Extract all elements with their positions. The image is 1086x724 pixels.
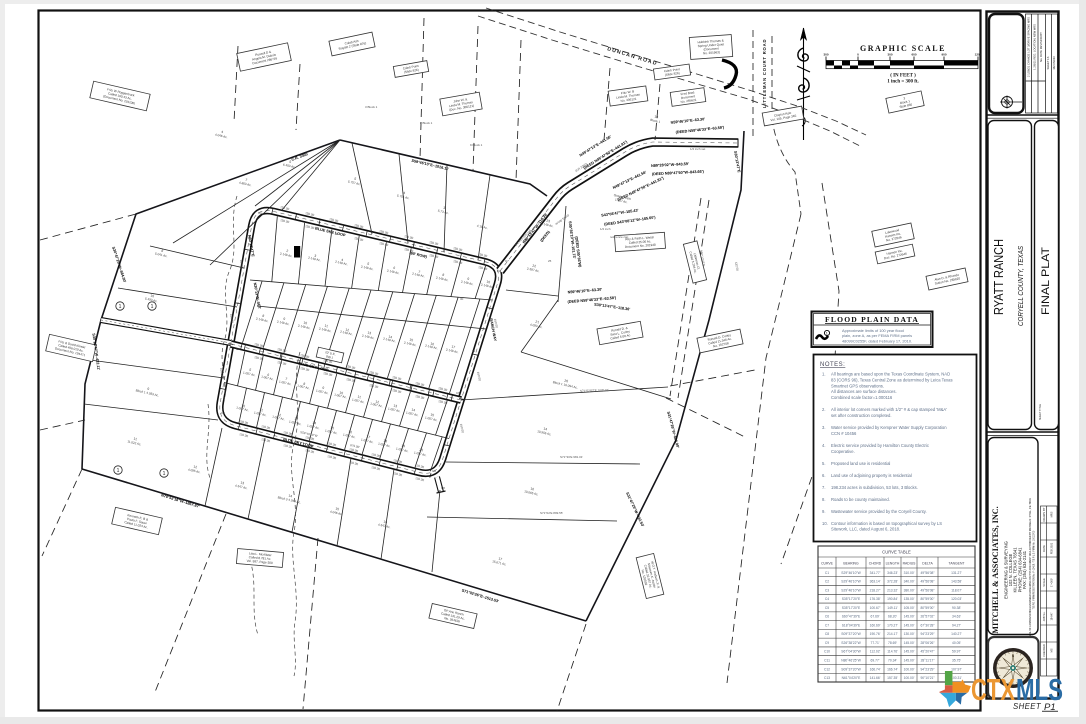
svg-text:Sitework, LLC, dated August 6,: Sitework, LLC, dated August 6, 2018. bbox=[831, 527, 900, 532]
svg-text:149.11': 149.11' bbox=[887, 606, 898, 610]
svg-text:C5: C5 bbox=[825, 606, 829, 610]
svg-text:8.: 8. bbox=[822, 497, 826, 502]
svg-text:80°59'00": 80°59'00" bbox=[920, 597, 935, 601]
svg-text:310.00': 310.00' bbox=[904, 571, 915, 575]
svg-text:35.75': 35.75' bbox=[952, 659, 961, 663]
svg-text:C2: C2 bbox=[825, 580, 829, 584]
svg-text:346.23': 346.23' bbox=[887, 571, 898, 575]
svg-text:94°23'29": 94°23'29" bbox=[920, 632, 935, 636]
svg-text:166.74': 166.74' bbox=[870, 667, 881, 671]
svg-text:S35°17'20"E: S35°17'20"E bbox=[842, 606, 861, 610]
svg-text:S71°02'E 899.55': S71°02'E 899.55' bbox=[540, 511, 563, 515]
svg-text:Roads to be county maintained.: Roads to be county maintained. bbox=[831, 497, 890, 502]
svg-text:Contour information is based o: Contour information is based on topograp… bbox=[831, 521, 942, 526]
svg-text:140.27': 140.27' bbox=[951, 632, 962, 636]
svg-text:70.34': 70.34' bbox=[888, 659, 897, 663]
svg-text:1: 1 bbox=[119, 304, 122, 310]
svg-text:80°59'00": 80°59'00" bbox=[920, 606, 935, 610]
svg-text:DATE: DATE bbox=[1042, 545, 1046, 552]
svg-text:214.17': 214.17' bbox=[887, 632, 898, 636]
svg-text:CHORD: CHORD bbox=[869, 561, 882, 565]
svg-text:1 inch = 300 ft.: 1 inch = 300 ft. bbox=[887, 80, 919, 85]
svg-text:TANGENT: TANGENT bbox=[949, 561, 965, 565]
svg-text:68.20': 68.20' bbox=[888, 615, 897, 619]
svg-text:94.27': 94.27' bbox=[952, 623, 961, 627]
svg-text:1.: 1. bbox=[822, 372, 826, 377]
svg-text:9 Block 1: 9 Block 1 bbox=[470, 143, 483, 147]
svg-text:set after construction complet: set after construction completed. bbox=[831, 413, 892, 418]
svg-text:SHEET 1S: SHEET 1S bbox=[1046, 56, 1050, 69]
svg-text:166.74': 166.74' bbox=[887, 667, 898, 671]
svg-text:C8: C8 bbox=[825, 632, 829, 636]
svg-text:CHECKED: CHECKED bbox=[1042, 644, 1046, 657]
svg-text:300: 300 bbox=[823, 53, 828, 57]
svg-text:S67°04'30"W: S67°04'30"W bbox=[841, 650, 861, 654]
svg-text:Cooperative.: Cooperative. bbox=[831, 449, 855, 454]
svg-text:C7: C7 bbox=[825, 623, 829, 627]
svg-text:Combined scale factor=1.000116: Combined scale factor=1.000116 bbox=[831, 395, 893, 400]
svg-text:143.58': 143.58' bbox=[951, 580, 962, 584]
svg-text:145.00': 145.00' bbox=[904, 659, 915, 663]
svg-text:145.00': 145.00' bbox=[904, 641, 915, 645]
svg-text:49°56'08": 49°56'08" bbox=[920, 580, 935, 584]
svg-text:1: 1 bbox=[151, 304, 154, 310]
svg-text:C2: C2 bbox=[497, 269, 501, 273]
svg-text:26°57'02": 26°57'02" bbox=[920, 615, 935, 619]
svg-text:170.27': 170.27' bbox=[887, 623, 898, 627]
svg-text:67.69': 67.69' bbox=[871, 615, 880, 619]
svg-text:145.00': 145.00' bbox=[904, 650, 915, 654]
svg-text:S35°17'20"E: S35°17'20"E bbox=[842, 597, 861, 601]
svg-text:380.00': 380.00' bbox=[904, 588, 915, 592]
svg-text:Smartnet GPS observations.: Smartnet GPS observations. bbox=[831, 383, 884, 388]
svg-text:S29°46'10"W: S29°46'10"W bbox=[841, 580, 861, 584]
svg-text:372.28': 372.28' bbox=[887, 580, 898, 584]
svg-text:1: 1 bbox=[826, 332, 828, 336]
svg-text:1: 1 bbox=[163, 471, 166, 477]
svg-text:All bearings are based upon th: All bearings are based upon the Texas Co… bbox=[831, 372, 950, 377]
svg-text:REVISION: REVISION bbox=[1052, 57, 1056, 70]
svg-text:BEARING: BEARING bbox=[843, 561, 859, 565]
svg-text:94°23'29": 94°23'29" bbox=[920, 667, 935, 671]
svg-text:CTX: CTX bbox=[971, 672, 1015, 707]
svg-text:C8: C8 bbox=[441, 486, 445, 490]
svg-text:C5: C5 bbox=[236, 347, 240, 351]
svg-text:3 Block 1: 3 Block 1 bbox=[365, 105, 378, 109]
svg-text:C4: C4 bbox=[825, 597, 829, 601]
svg-text:C9: C9 bbox=[825, 641, 829, 645]
svg-text:MLS: MLS bbox=[1016, 672, 1063, 707]
svg-text:1: 1 bbox=[117, 468, 120, 474]
svg-text:MRS: MRS bbox=[1050, 511, 1054, 517]
svg-text:100.67': 100.67' bbox=[870, 606, 881, 610]
svg-text:MITCHELL & ASSOCIATES, INC.: MITCHELL & ASSOCIATES, INC. bbox=[991, 506, 1000, 633]
svg-text:28°11'17": 28°11'17" bbox=[921, 659, 936, 663]
svg-text:( IN FEET ): ( IN FEET ) bbox=[890, 74, 916, 79]
svg-text:C3: C3 bbox=[825, 588, 829, 592]
svg-text:GRAPHIC SCALE: GRAPHIC SCALE bbox=[860, 44, 946, 53]
svg-text:100.00': 100.00' bbox=[904, 667, 915, 671]
svg-text:190.84': 190.84' bbox=[887, 597, 898, 601]
svg-text:RADIUS: RADIUS bbox=[903, 561, 917, 565]
svg-text:S18°04'39"E: S18°04'39"E bbox=[842, 623, 861, 627]
svg-text:1/2 inch: 1/2 inch bbox=[600, 227, 611, 231]
svg-text:C4: C4 bbox=[221, 411, 225, 415]
svg-text:83 (CORS 96), Texas Central Zo: 83 (CORS 96), Texas Central Zone as dete… bbox=[831, 377, 953, 382]
svg-text:7.: 7. bbox=[822, 485, 826, 490]
svg-text:All interior lot corners marke: All interior lot corners marked with 1/2… bbox=[831, 407, 947, 412]
svg-text:Land use of adjoining property: Land use of adjoining property is reside… bbox=[831, 473, 912, 478]
svg-text:160.69': 160.69' bbox=[870, 623, 881, 627]
svg-text:112.02': 112.02' bbox=[870, 650, 881, 654]
svg-text:RYATT RANCH: RYATT RANCH bbox=[992, 239, 1006, 315]
svg-text:300: 300 bbox=[887, 53, 892, 57]
svg-text:67°30'28": 67°30'28" bbox=[920, 623, 935, 627]
svg-text:130.00': 130.00' bbox=[904, 632, 915, 636]
svg-text:DELTA: DELTA bbox=[922, 561, 933, 565]
svg-text:100.31': 100.31' bbox=[951, 676, 962, 680]
svg-text:FLOOD PLAIN DATA: FLOOD PLAIN DATA bbox=[825, 315, 919, 324]
svg-text:8 Block 1: 8 Block 1 bbox=[420, 121, 433, 125]
svg-text:90°10'21": 90°10'21" bbox=[920, 676, 935, 680]
svg-text:CORYELL COUNTY, TEXAS: CORYELL COUNTY, TEXAS bbox=[1016, 246, 1025, 326]
svg-text:1200: 1200 bbox=[975, 53, 982, 57]
svg-text:25: 25 bbox=[548, 259, 552, 263]
svg-text:78.69': 78.69' bbox=[888, 641, 897, 645]
svg-text:340.00': 340.00' bbox=[904, 580, 915, 584]
svg-text:190.76': 190.76' bbox=[870, 632, 881, 636]
svg-text:600: 600 bbox=[911, 53, 916, 57]
svg-text:198.234 acres in subdivision,: 198.234 acres in subdivision, 53 lots, 3… bbox=[831, 485, 918, 490]
svg-text:C3: C3 bbox=[432, 469, 436, 473]
svg-text:9.: 9. bbox=[822, 509, 826, 514]
svg-text:C10: C10 bbox=[824, 650, 830, 654]
svg-text:77.71': 77.71' bbox=[871, 641, 880, 645]
svg-text:90.38': 90.38' bbox=[952, 606, 961, 610]
svg-text:131.27': 131.27' bbox=[951, 571, 962, 575]
svg-text:40.05': 40.05' bbox=[952, 641, 961, 645]
svg-text:45°20'47": 45°20'47" bbox=[920, 650, 935, 654]
svg-text:S26°38'22"W: S26°38'22"W bbox=[841, 641, 861, 645]
svg-text:2 1/26/21 CHANGE LOT 3/DRIVE: 2 1/26/21 CHANGE LOT 3/DRIVE SPACING MRS bbox=[1027, 17, 1031, 77]
svg-text:18-047: 18-047 bbox=[1050, 612, 1054, 621]
svg-text:363.14': 363.14' bbox=[870, 580, 881, 584]
svg-text:218.27': 218.27' bbox=[870, 588, 881, 592]
svg-text:C12: C12 bbox=[824, 667, 830, 671]
svg-text:SCALE: SCALE bbox=[1042, 578, 1046, 587]
svg-text:SHEET TITLE: SHEET TITLE bbox=[1038, 404, 1042, 421]
svg-text:49°56'08": 49°56'08" bbox=[920, 571, 935, 575]
svg-text:Electric service provided by H: Electric service provided by Hamilton Co… bbox=[831, 443, 929, 448]
svg-text:1 2/5/21 REG. LOCATION, NE: 1 2/5/21 REG. LOCATION, NEW MRS bbox=[1033, 24, 1037, 70]
svg-text:28°06'26": 28°06'26" bbox=[920, 641, 935, 645]
svg-text:114.76': 114.76' bbox=[887, 650, 898, 654]
svg-text:FEB 2021: FEB 2021 bbox=[1050, 542, 1054, 554]
svg-text:FINAL PLAT: FINAL PLAT bbox=[1040, 247, 1052, 315]
svg-text:LENGTH: LENGTH bbox=[886, 561, 900, 565]
svg-text:Proposed land use is residenti: Proposed land use is residential bbox=[831, 461, 890, 466]
svg-text:reference cap: reference cap bbox=[610, 235, 629, 239]
svg-text:C6: C6 bbox=[456, 391, 460, 395]
svg-text:JOB No.: JOB No. bbox=[1042, 611, 1046, 621]
svg-text:6.: 6. bbox=[822, 473, 826, 478]
svg-text:30: 30 bbox=[460, 297, 464, 301]
svg-text:5.: 5. bbox=[822, 461, 826, 466]
svg-text:49°56'08": 49°56'08" bbox=[920, 588, 935, 592]
svg-text:C7: C7 bbox=[505, 259, 509, 263]
svg-text:All distances are surface dist: All distances are surface distances. bbox=[831, 389, 897, 394]
svg-text:145.00': 145.00' bbox=[904, 615, 915, 619]
svg-text:105.00': 105.00' bbox=[904, 606, 915, 610]
svg-text:3.: 3. bbox=[822, 425, 826, 430]
svg-text:S09°37'20"W: S09°37'20"W bbox=[841, 632, 861, 636]
svg-text:S29°46'10"W: S29°46'10"W bbox=[841, 588, 861, 592]
svg-text:N80°46'25"W: N80°46'25"W bbox=[841, 659, 862, 663]
svg-text:T.B.P.E. FIRM REGISTRATION No.: T.B.P.E. FIRM REGISTRATION No. F-10418 /… bbox=[1033, 530, 1036, 609]
svg-text:FAX: (254) 634-2141: FAX: (254) 634-2141 bbox=[1022, 550, 1027, 589]
svg-text:145.00': 145.00' bbox=[904, 623, 915, 627]
svg-text:CURVE TABLE: CURVE TABLE bbox=[882, 549, 911, 554]
svg-text:C11: C11 bbox=[824, 659, 830, 663]
svg-text:69.77': 69.77' bbox=[871, 659, 880, 663]
svg-text:N61°04'20"E: N61°04'20"E bbox=[842, 676, 862, 680]
svg-text:141.66': 141.66' bbox=[870, 676, 881, 680]
svg-text:S71°30'E 981.01': S71°30'E 981.01' bbox=[560, 455, 583, 459]
svg-text:1/2 inch set: 1/2 inch set bbox=[690, 147, 706, 151]
svg-text:Water service provided by Kemp: Water service provided by Kempner Water … bbox=[831, 425, 947, 430]
svg-text:C6: C6 bbox=[825, 615, 829, 619]
svg-text:S29°46'10"W: S29°46'10"W bbox=[841, 571, 861, 575]
svg-text:4.: 4. bbox=[822, 443, 826, 448]
svg-text:C13: C13 bbox=[824, 676, 830, 680]
svg-text:48099C0255F, dated February 17: 48099C0255F, dated February 17, 2010. bbox=[842, 338, 912, 343]
svg-text:NOTES:: NOTES: bbox=[820, 362, 845, 368]
svg-text:DRAWN BY: DRAWN BY bbox=[1042, 507, 1046, 521]
svg-text:118.07': 118.07' bbox=[951, 588, 962, 592]
svg-text:C1: C1 bbox=[825, 571, 829, 575]
svg-text:157.35': 157.35' bbox=[887, 676, 898, 680]
svg-text:LITTLEMAN COURT ROAD: LITTLEMAN COURT ROAD bbox=[762, 39, 767, 108]
svg-text:10.: 10. bbox=[822, 521, 828, 526]
svg-text:1"=300': 1"=300' bbox=[1050, 578, 1054, 587]
svg-text:CURVE: CURVE bbox=[821, 561, 834, 565]
svg-text:34.63': 34.63' bbox=[952, 615, 961, 619]
svg-text:100.00': 100.00' bbox=[904, 676, 915, 680]
svg-text:135.00': 135.00' bbox=[904, 597, 915, 601]
svg-text:Wastewater service provided by: Wastewater service provided by the Corye… bbox=[831, 509, 927, 514]
svg-text:THE SEAL OF A PROFESSIONAL ENG: THE SEAL OF A PROFESSIONAL ENGINEER APPE… bbox=[1029, 497, 1032, 642]
svg-text:CCN # 10456: CCN # 10456 bbox=[831, 431, 857, 436]
svg-text:900: 900 bbox=[941, 53, 946, 57]
svg-text:21: 21 bbox=[472, 349, 476, 353]
svg-text:No. DATE REVISION BY: No. DATE REVISION BY bbox=[1039, 32, 1043, 62]
svg-text:107.97': 107.97' bbox=[951, 667, 962, 671]
svg-text:2.: 2. bbox=[822, 407, 826, 412]
svg-text:120.03': 120.03' bbox=[951, 597, 962, 601]
svg-text:S60°47'39"E: S60°47'39"E bbox=[842, 615, 861, 619]
svg-text:59.97': 59.97' bbox=[952, 650, 961, 654]
svg-text:S09°37'20"W: S09°37'20"W bbox=[841, 667, 861, 671]
svg-text:213.32': 213.32' bbox=[887, 588, 898, 592]
svg-text:176.38': 176.38' bbox=[870, 597, 881, 601]
svg-text:341.77': 341.77' bbox=[870, 571, 881, 575]
svg-text:MS: MS bbox=[1050, 648, 1054, 652]
svg-text:C1: C1 bbox=[258, 211, 262, 215]
